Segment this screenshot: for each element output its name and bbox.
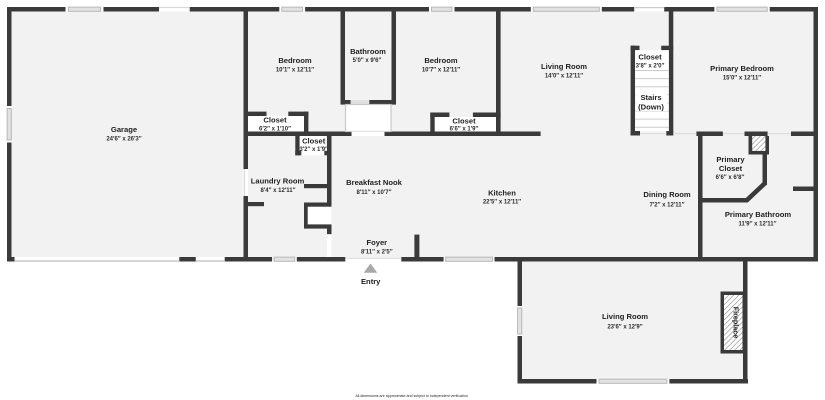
svg-text:8′11″ x 2′5″: 8′11″ x 2′5″ [361, 250, 393, 256]
svg-text:6′2″ x 1′10″: 6′2″ x 1′10″ [259, 127, 291, 133]
svg-text:Laundry Room: Laundry Room [251, 177, 305, 186]
svg-text:Bedroom: Bedroom [278, 56, 312, 65]
svg-text:Primary Bathroom: Primary Bathroom [725, 210, 792, 219]
svg-text:15′0″ x 12′11″: 15′0″ x 12′11″ [723, 76, 761, 82]
svg-text:7′2″ x 12′11″: 7′2″ x 12′11″ [650, 203, 685, 209]
svg-text:Closet: Closet [263, 116, 287, 125]
svg-text:6′6″ x 1′9″: 6′6″ x 1′9″ [450, 127, 479, 133]
svg-text:Stairs: Stairs [640, 93, 661, 102]
svg-text:10′1″ x 12′11″: 10′1″ x 12′11″ [276, 68, 314, 74]
svg-text:Living Room: Living Room [602, 312, 648, 321]
svg-text:24′6″ x 26′3″: 24′6″ x 26′3″ [106, 137, 141, 143]
svg-text:Closet: Closet [302, 137, 326, 146]
svg-text:Primary: Primary [716, 155, 745, 164]
svg-text:6′6″ x 6′8″: 6′6″ x 6′8″ [716, 175, 745, 181]
svg-text:Garage: Garage [111, 125, 137, 134]
svg-text:14′0″ x 12′11″: 14′0″ x 12′11″ [545, 74, 583, 80]
svg-text:(Down): (Down) [638, 103, 664, 112]
svg-text:Entry: Entry [361, 277, 381, 286]
svg-text:Bedroom: Bedroom [424, 56, 458, 65]
svg-text:Living Room: Living Room [541, 62, 587, 71]
svg-text:Closet: Closet [452, 117, 476, 126]
svg-text:8′4″ x 12′11″: 8′4″ x 12′11″ [261, 188, 296, 194]
svg-text:Primary Bedroom: Primary Bedroom [710, 64, 774, 73]
svg-text:8′11″ x 10′7″: 8′11″ x 10′7″ [357, 190, 392, 196]
svg-text:3′2″ x 1′9″: 3′2″ x 1′9″ [299, 147, 328, 153]
svg-text:Closet: Closet [638, 53, 662, 62]
svg-text:23′6″ x 12′9″: 23′6″ x 12′9″ [607, 325, 642, 331]
svg-text:Kitchen: Kitchen [488, 189, 516, 198]
svg-text:Breakfast Nook: Breakfast Nook [346, 178, 402, 187]
svg-text:Closet: Closet [719, 164, 743, 173]
svg-text:11′9″ x 12′11″: 11′9″ x 12′11″ [739, 222, 777, 228]
svg-text:10′7″ x 12′11″: 10′7″ x 12′11″ [422, 68, 460, 74]
svg-text:Foyer: Foyer [366, 238, 387, 247]
svg-text:Fireplace: Fireplace [732, 307, 741, 339]
svg-text:22′5″ x 12′11″: 22′5″ x 12′11″ [483, 200, 521, 206]
svg-text:Dining Room: Dining Room [643, 190, 690, 199]
svg-text:5′0″ x 9′6″: 5′0″ x 9′6″ [353, 58, 382, 64]
svg-text:3′8″ x 2′0″: 3′8″ x 2′0″ [636, 64, 665, 70]
svg-text:Bathroom: Bathroom [350, 47, 386, 56]
svg-text:All dimensions are approximate: All dimensions are approximate and subje… [355, 394, 467, 398]
